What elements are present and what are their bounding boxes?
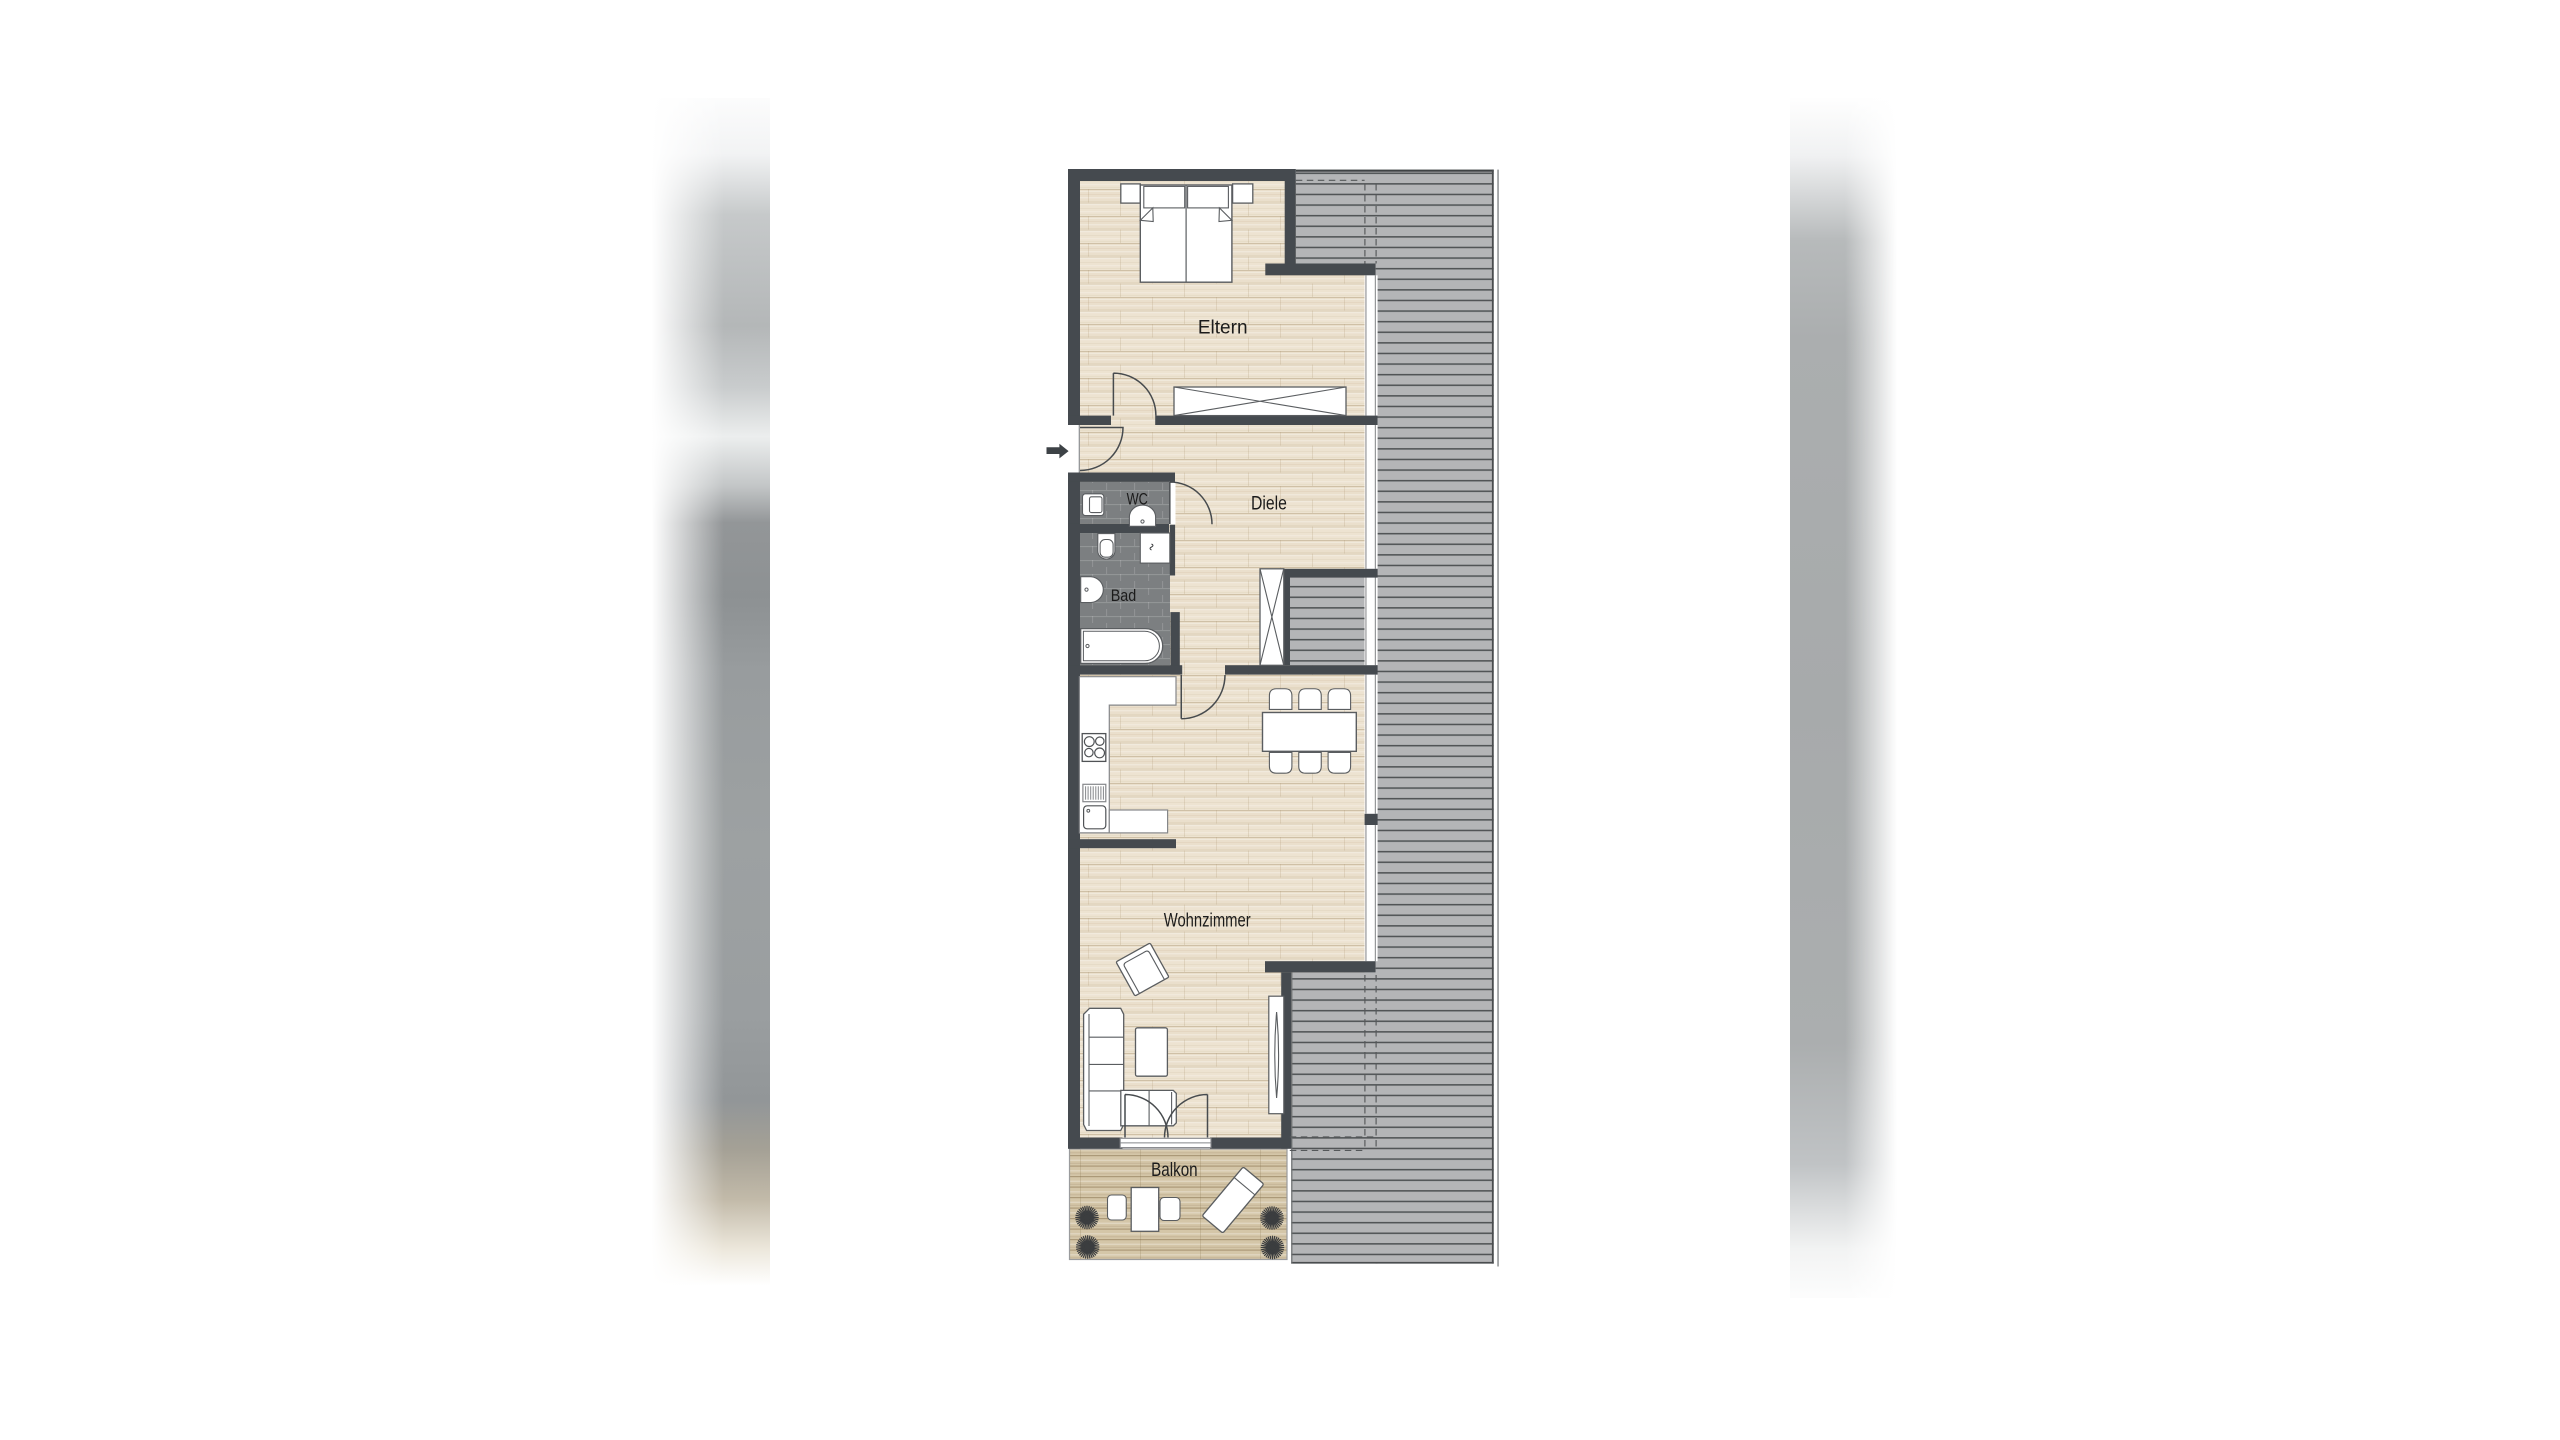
svg-text:Eltern: Eltern (1198, 318, 1248, 339)
svg-text:Bad: Bad (1111, 587, 1137, 605)
svg-text:WC: WC (1127, 490, 1148, 509)
svg-text:Balkon: Balkon (1151, 1158, 1197, 1180)
svg-text:Wohnzimmer: Wohnzimmer (1164, 910, 1251, 931)
svg-text:Diele: Diele (1251, 492, 1287, 514)
